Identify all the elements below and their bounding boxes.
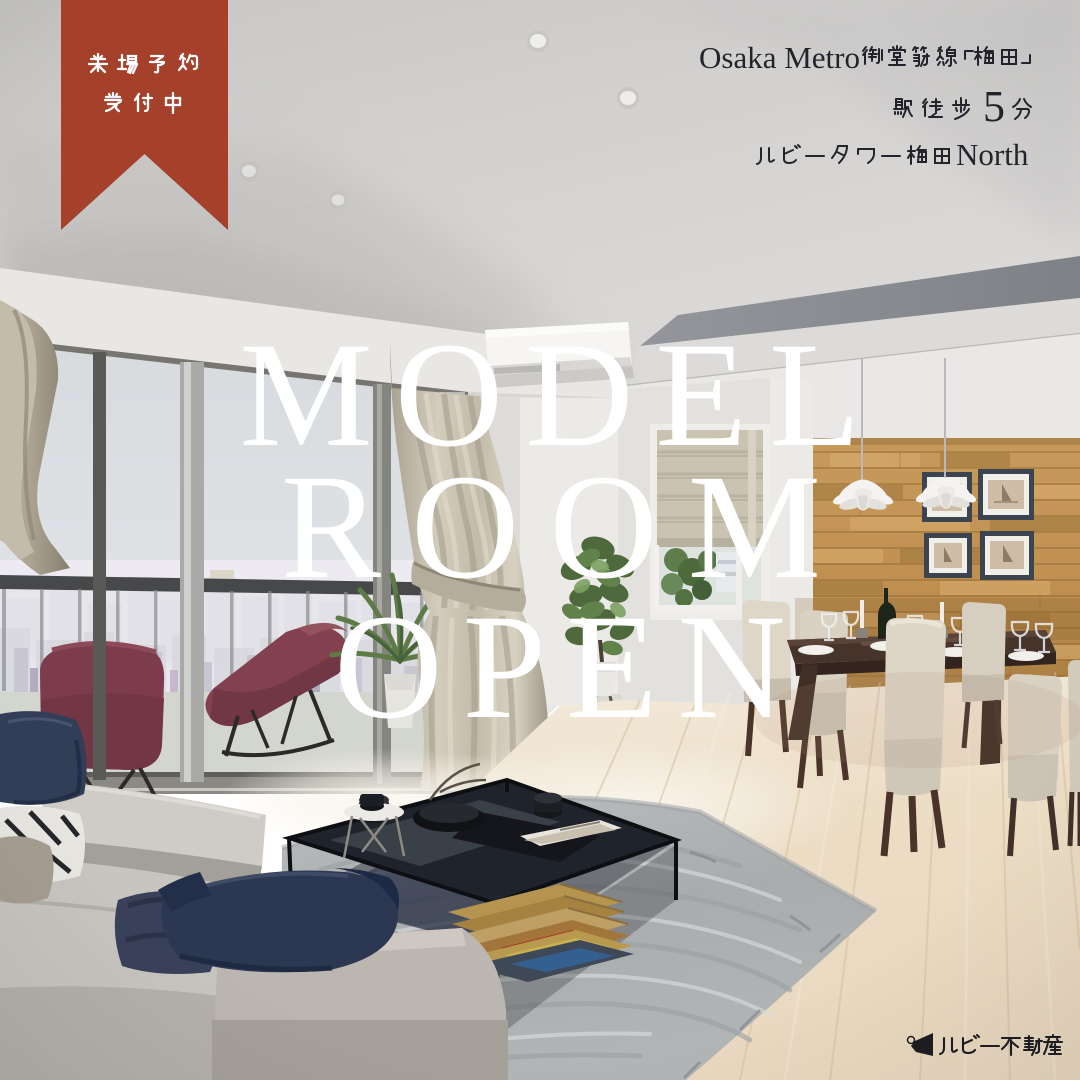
svg-text:5: 5 — [983, 82, 1005, 131]
svg-text:Osaka Metro: Osaka Metro — [699, 40, 860, 75]
svg-text:North: North — [956, 137, 1029, 172]
svg-text:OPEN: OPEN — [334, 584, 806, 750]
